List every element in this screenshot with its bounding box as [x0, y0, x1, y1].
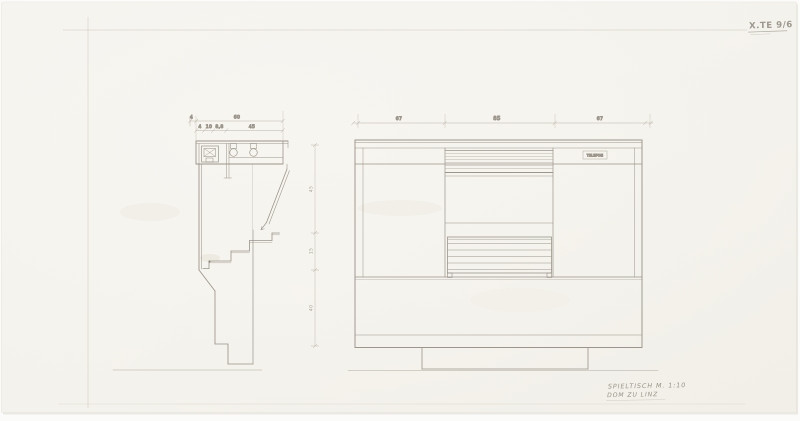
paper-sheet: [2, 2, 799, 415]
dimension-label: 15: [309, 248, 315, 254]
panel-label-text: TELEFON: [586, 154, 604, 158]
scanned-drawing-sheet: 4 60 4 10 8,8 45: [0, 0, 800, 421]
dimension-label: 67: [597, 116, 603, 122]
dimension-label: 85: [493, 116, 500, 122]
title-line2: DOM ZU LINZ: [607, 391, 658, 399]
dimension-label: 8,8: [215, 124, 223, 130]
dimension-label: 40: [309, 305, 315, 311]
stamp-text: X.TE 9/6: [749, 20, 793, 32]
drawing-sheet-svg: 4 60 4 10 8,8 45: [0, 0, 800, 421]
dimension-label: 60: [234, 115, 240, 121]
dimension-label: 67: [396, 116, 402, 122]
title-line1: SPIELTISCH M. 1:10: [608, 381, 686, 390]
dimension-label: 45: [249, 124, 255, 130]
dimension-label: 45: [309, 186, 315, 192]
dimension-label: 4: [198, 124, 201, 130]
dimension-label: 4: [190, 115, 193, 121]
dimension-label: 10: [206, 124, 212, 130]
